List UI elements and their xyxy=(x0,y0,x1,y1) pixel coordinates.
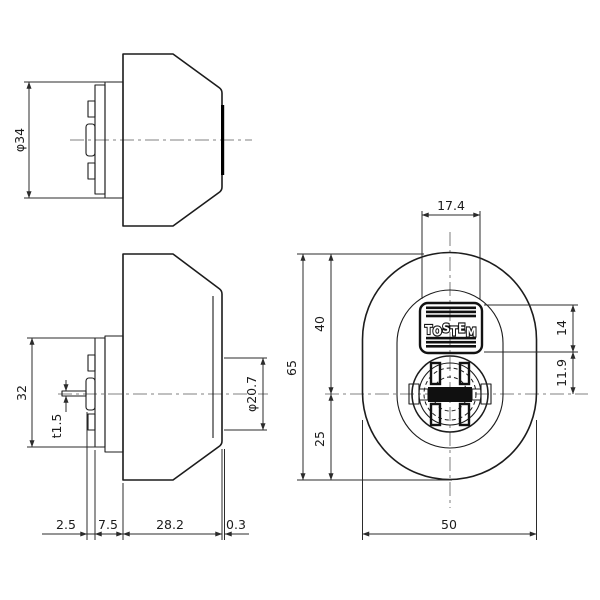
dim-phi34-label: φ34 xyxy=(12,128,27,152)
dim-t15-label: t1.5 xyxy=(49,414,64,439)
lock-cylinder-drawing: φ34 32 t1.5 φ20.7 xyxy=(0,0,600,600)
top-view: φ34 xyxy=(12,54,223,226)
dim-tailpiece-thickness: t1.5 xyxy=(49,380,66,438)
dim-right-stack: 14 11.9 xyxy=(484,305,578,394)
side-view: 32 t1.5 φ20.7 2.5 7.5 xyxy=(14,254,267,540)
tostem-logo-text: TOSTEM xyxy=(425,322,477,340)
dim-50-label: 50 xyxy=(441,517,457,532)
dim-03-label: 0.3 xyxy=(226,517,246,532)
clip-bottom xyxy=(88,163,95,179)
dim-25-offset-label: 2.5 xyxy=(56,517,76,532)
dim-75-label: 7.5 xyxy=(98,517,118,532)
clip-top xyxy=(88,101,95,117)
clip-upper xyxy=(88,355,95,371)
dim-65-label: 65 xyxy=(284,360,299,376)
dim-119-label: 11.9 xyxy=(554,359,569,387)
dim-174: 17.4 xyxy=(422,198,480,299)
dim-174-label: 17.4 xyxy=(437,198,465,213)
key-slot xyxy=(428,387,472,402)
dim-14-label: 14 xyxy=(554,320,569,336)
clip-lower xyxy=(88,414,95,430)
dim-40-label: 40 xyxy=(312,316,327,332)
dim-phi34: φ34 xyxy=(12,82,107,198)
dim-25-label: 25 xyxy=(312,431,327,447)
logo-plate: TOSTEM xyxy=(420,303,482,353)
escutcheon-side-outline xyxy=(123,254,222,480)
front-view: TOSTEM 17.4 xyxy=(284,198,578,540)
dim-left-stack: 65 40 25 xyxy=(284,254,452,480)
dim-282-label: 28.2 xyxy=(156,517,184,532)
dim-phi207-label: φ20.7 xyxy=(244,376,259,412)
mounting-plate-side xyxy=(95,338,105,447)
dim-32-label: 32 xyxy=(14,385,29,401)
dim-bottom-chain: 2.5 7.5 28.2 0.3 xyxy=(42,412,249,540)
technical-drawing-page: φ34 32 t1.5 φ20.7 xyxy=(0,0,600,600)
